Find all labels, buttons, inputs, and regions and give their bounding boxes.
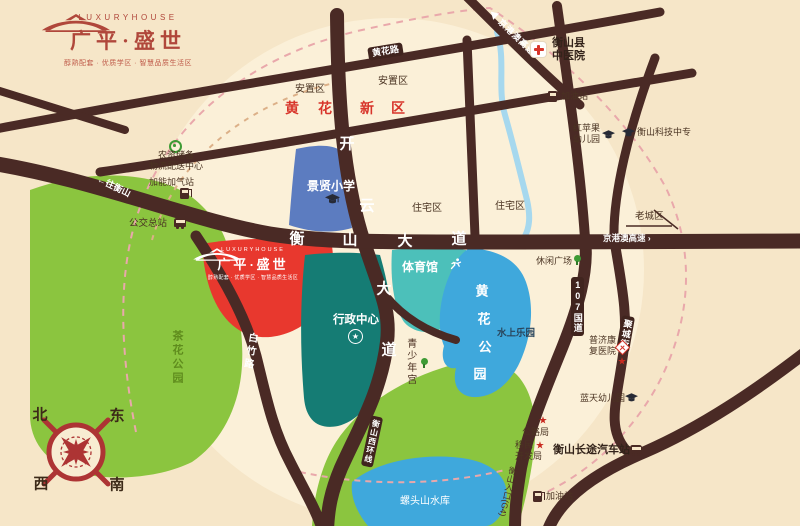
road-label-kaiyun-3: 道 — [381, 339, 396, 360]
road-label-kaiyun-0: 开 — [339, 133, 354, 154]
brand-roof-icon — [40, 12, 112, 34]
poi-logistics-center: 农资储备 物流配送中心 — [149, 150, 203, 171]
poi-red-apple-kindergarten: 红苹果 幼儿园 — [573, 123, 600, 144]
road-label-hengshan-1: 山 — [342, 229, 357, 250]
area-youth-palace-label: 青少年宫 — [404, 338, 416, 386]
brand-tagline: 醇熟配套 · 优质学区 · 智慧品质生活区 — [40, 58, 216, 68]
poi-tcm-hospital-line2: 中医院 — [552, 50, 585, 63]
district-huanghua-new-3: 区 — [391, 98, 405, 118]
red-star-icon: ★ — [618, 357, 627, 368]
location-map: LUXURYHOUSE 广平·盛世 醇熟配套 · 优质学区 · 智慧品质生活区 … — [0, 0, 800, 526]
road-label-kaiyun-2: 大 — [376, 278, 391, 299]
poi-coach-station: 衡山长途汽车站 — [553, 444, 630, 457]
gas-pump-icon-ne — [548, 91, 557, 102]
poi-tech-college: 衡山科技中专 — [637, 127, 691, 138]
gas-pump-icon-s — [533, 491, 542, 502]
area-tea-park-label: 茶花公园 — [170, 330, 183, 386]
gas-pump-icon-cng — [180, 188, 189, 199]
district-residential-left: 住宅区 — [412, 203, 442, 215]
road-label-hengshan-3: 道 — [451, 228, 466, 249]
area-huanghua-park-0: 黄 — [475, 281, 488, 300]
road-label-jinggangao-right: 京港澳高速 › — [603, 233, 651, 243]
road-label-hengshan-0: 衡 — [289, 228, 304, 249]
brand-logo: LUXURYHOUSE 广平·盛世 醇熟配套 · 优质学区 · 智慧品质生活区 — [40, 12, 216, 68]
area-water-fun-label: 水上乐园 — [497, 328, 535, 339]
youth-palace-tree-icon — [420, 358, 428, 368]
district-residential-right: 住宅区 — [495, 201, 525, 213]
poi-rehab-line1: 普济康 — [589, 335, 616, 346]
poi-gas-station-ne: 加油站 — [561, 91, 588, 102]
poi-bus-terminal: 公交总站 — [129, 218, 167, 229]
red-star-icon: ★ — [539, 416, 548, 427]
road-label-kaiyun-1: 云 — [359, 195, 374, 216]
hospital-cross-icon — [531, 42, 546, 57]
compass-west-label: 西 — [33, 473, 48, 494]
poi-logistics-line1: 农资储备 — [149, 150, 203, 161]
circled-star-icon: ★ — [348, 329, 363, 344]
leisure-plaza-tree-icon — [573, 255, 581, 265]
poi-red-apple-line1: 红苹果 — [573, 123, 600, 134]
graduation-cap-icon — [622, 128, 635, 138]
district-huanghua-new-2: 新 — [360, 98, 374, 118]
poi-leisure-plaza: 休闲广场 — [536, 256, 572, 267]
graduation-cap-icon — [625, 393, 638, 403]
district-resettlement-left: 安置区 — [295, 84, 325, 96]
area-stadium-label: 体育馆 — [402, 260, 438, 274]
compass-south-label: 南 — [109, 474, 124, 495]
bus-icon-coach-station — [630, 445, 642, 454]
runner-icon — [450, 258, 462, 270]
poi-migration-line1: 移民 — [515, 440, 542, 451]
area-admin-label: 行政中心 — [333, 314, 379, 328]
poi-gas-station-s: 加油站 — [546, 491, 573, 502]
poi-tcm-hospital: 衡山县 中医院 — [552, 37, 585, 63]
district-resettlement-right: 安置区 — [378, 76, 408, 88]
compass-rose — [44, 420, 108, 484]
poi-cng-station: 加能加气站 — [149, 177, 194, 188]
site-tagline: 醇熟配套 · 优质学区 · 智慧品质生活区 — [190, 274, 316, 281]
compass-north-label: 北 — [32, 404, 47, 425]
poi-logistics-line2: 物流配送中心 — [149, 161, 203, 172]
poi-red-apple-line2: 幼儿园 — [573, 134, 600, 145]
poi-migration-bureau: 移民 开发局 — [515, 440, 542, 461]
area-reservoir-label: 螺头山水库 — [400, 496, 450, 508]
area-school-label: 景贤小学 — [307, 179, 355, 193]
area-huanghua-park-3: 园 — [473, 364, 486, 383]
poi-highway-bureau: 公路局 — [522, 427, 549, 438]
road-badge-g107: 107国道 — [571, 277, 584, 336]
district-old-town: 老城区 — [635, 211, 664, 222]
road-label-hengshan-2: 大 — [397, 230, 412, 251]
graduation-cap-icon — [602, 130, 615, 140]
poi-migration-line2: 开发局 — [515, 451, 542, 462]
district-huanghua-new-0: 黄 — [285, 98, 299, 118]
area-huanghua-park-1: 花 — [477, 309, 490, 328]
district-huanghua-new-1: 花 — [318, 98, 332, 118]
site-logo: LUXURYHOUSE 广平·盛世 醇熟配套 · 优质学区 · 智慧品质生活区 — [190, 247, 316, 281]
graduation-cap-icon — [325, 194, 340, 205]
area-huanghua-park-2: 公 — [478, 337, 491, 356]
bus-icon-terminal — [174, 218, 186, 227]
poi-tcm-hospital-line1: 衡山县 — [552, 37, 585, 50]
site-roof-icon — [190, 247, 244, 262]
poi-rehab-hospital: 普济康 复医院 — [589, 335, 616, 356]
compass-star — [58, 434, 94, 470]
poi-blue-sky-kindergarten: 蓝天幼儿园 — [580, 393, 625, 404]
poi-rehab-line2: 复医院 — [589, 346, 616, 357]
compass-east-label: 东 — [109, 405, 124, 426]
